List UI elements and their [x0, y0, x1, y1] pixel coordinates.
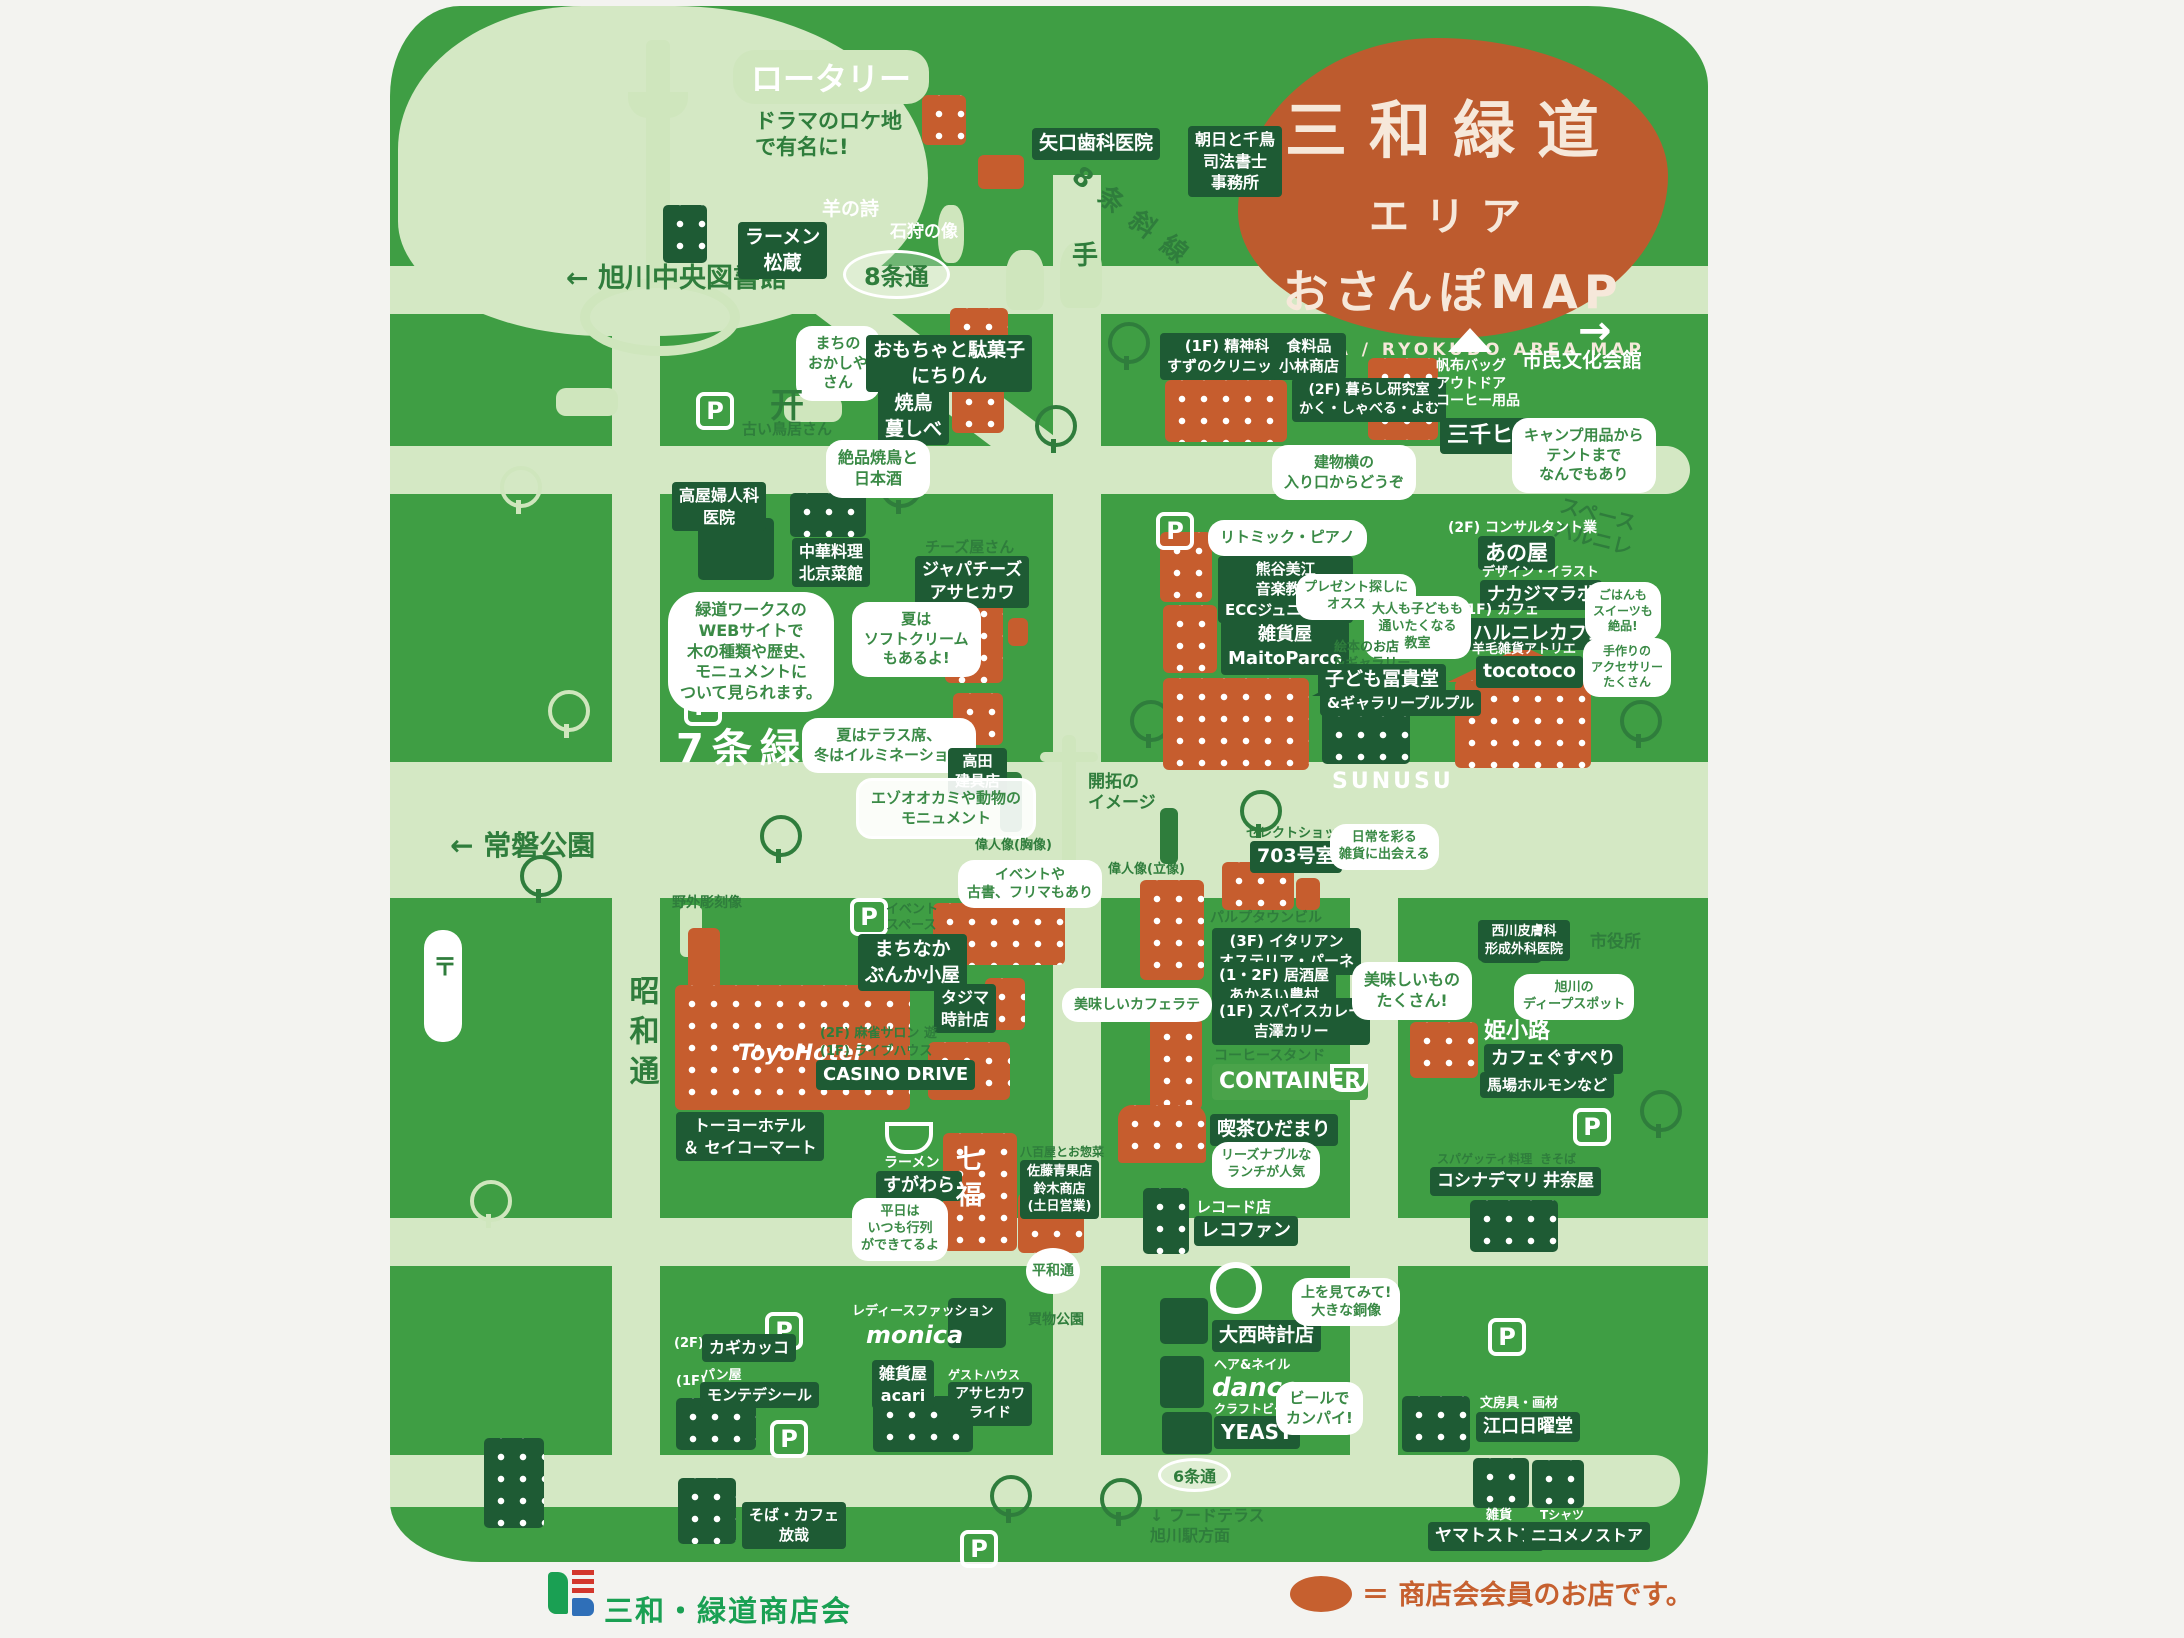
building-hosai [678, 1478, 736, 1544]
genre-cheese: チーズ屋さん [925, 538, 1014, 557]
shop-nishikawa: 西川皮膚科 形成外科医院 [1478, 920, 1570, 961]
shop-703: 703号室 [1250, 841, 1342, 873]
genre-yaoya: 八百屋とお惣菜 [1020, 1145, 1104, 1160]
road-showa-dori [612, 266, 660, 1507]
label-sheep-statue: 羊の詩 [822, 198, 879, 222]
genre-mahjong: (2F) 麻雀サロン 遊 [820, 1026, 937, 1042]
shop-yaguchi-dental: 矢口歯科医院 [1032, 128, 1160, 160]
genre-event-space: イベント スペース [886, 902, 938, 935]
shop-nikomeno-store: ニコメノストア [1524, 1522, 1650, 1550]
label-pulp-town: パルプタウンビル [1210, 910, 1322, 928]
bubble-yakitori: 絶品焼鳥と 日本酒 [826, 440, 930, 498]
parking-icon: P [1573, 1108, 1611, 1146]
shop-shichifuku: 七福 [950, 1145, 983, 1217]
parking-icon: P [1488, 1318, 1526, 1356]
genre-michihito: 帆布バッグ アウトドア コーヒー用品 [1436, 358, 1520, 411]
tower-cup-icon [628, 92, 688, 118]
genre-kosinade: スパゲッティ料理 [1437, 1152, 1532, 1167]
genre-anoya: (2F) コンサルタント業 [1448, 520, 1597, 538]
genre-casino: (1F) ライブハウス [820, 1044, 932, 1060]
building-fukido [1163, 678, 1309, 770]
figure-statue-icon [1160, 808, 1178, 864]
parking-icon: P [1156, 512, 1194, 550]
tree-icon [1108, 322, 1150, 364]
label-kaitaku: 開拓の イメージ [1088, 772, 1156, 815]
building-shiho-office [978, 155, 1024, 189]
building-maitoparco [1163, 605, 1217, 673]
shop-kagikakko: カギカッコ [702, 1334, 796, 1362]
genre-nikomeno: Tシャツ [1540, 1508, 1584, 1523]
chimney-toyo-hotel [688, 928, 720, 990]
hand-sculpture-icon [1006, 250, 1044, 310]
bubble-event: イベントや 古書、フリマもあり [958, 860, 1102, 908]
label-te-sculpture: 手 [1072, 240, 1098, 273]
bubble-accessory: 手作りの アクセサリー たくさん [1583, 638, 1671, 697]
building-pekin [790, 493, 866, 537]
label-food-terrace: ↓ フードテラス 旭川駅方面 [1150, 1506, 1265, 1546]
building-himekoji [1410, 1022, 1478, 1078]
label-8jo-dori: 8条通 [843, 250, 950, 299]
bubble-ryokudo-works: 緑道ワークスの WEBサイトで 木の種類や歴史、 モニュメントに ついて見られま… [668, 592, 834, 712]
legend-text: ＝ 商店会会員のお店です。 [1362, 1578, 1693, 1613]
pioneer-pole-arm-icon [1040, 752, 1098, 762]
building-container [1150, 1018, 1202, 1110]
building-pulp-town [1140, 880, 1204, 980]
genre-nakajima: デザイン・イラスト [1482, 565, 1599, 581]
tree-icon [1620, 700, 1662, 742]
label-heiwa-dori: 平和通 [1026, 1248, 1080, 1294]
shop-bunka-koya: まちなか ぶんか小屋 [858, 934, 967, 991]
shop-pekin: 中華料理 北京菜館 [792, 538, 870, 587]
shop-kobayashi: 食料品 小林商店 [1272, 333, 1346, 380]
shop-nichirin: おもちゃと駄菓子 にちりん [866, 335, 1032, 392]
building-nikomeno [1532, 1460, 1584, 1508]
building-matsuzo [663, 205, 707, 263]
parking-icon: P [696, 392, 734, 430]
shop-japacheese: ジャパチーズ アサヒカワ [915, 556, 1029, 608]
building-corner-shop [484, 1438, 544, 1528]
building-onishi [1160, 1298, 1208, 1344]
shop-fujinka: 高屋婦人科 医院 [672, 482, 766, 531]
shop-gusuperi: カフェぐすぺり [1484, 1044, 1623, 1074]
label-shiyakusho: 市役所 [1590, 932, 1641, 953]
bubble-camp: キャンプ用品から テントまで なんでもあり [1512, 418, 1656, 493]
label-rotary: ロータリー [733, 50, 929, 104]
label-tokiwa-park: ← 常磐公園 [450, 828, 595, 863]
building-suzuno-kobayashi [1165, 380, 1287, 442]
shop-monte-de-seal: モンテデシール [700, 1382, 819, 1408]
title-line2: エリア [1238, 184, 1668, 242]
building-703-annex [1296, 878, 1320, 910]
big-clock-icon [1210, 1262, 1262, 1314]
bubble-deep-spot: 旭川の ディープスポット [1514, 974, 1634, 1020]
logo-text: 三和・緑道商店会 [604, 1588, 852, 1630]
post-mark-icon: 〒 [433, 952, 457, 982]
genre-inaya: きそば [1540, 1152, 1576, 1167]
bubble-gyoretsu: 平日は いつも行列 ができてるよ [852, 1198, 948, 1261]
bubble-douzo: 上を見てみて! 大きな銅像 [1292, 1278, 1400, 1326]
label-sculpture: 野外彫刻像 [672, 895, 742, 913]
label-ijin-statue2: 偉人像(立像) [1108, 862, 1185, 878]
genre-sugawara: ラーメン [884, 1155, 939, 1173]
bubble-entrance: 建物横の 入り口からどうぞ [1272, 445, 1416, 500]
shop-tsurushibe: 焼鳥 蔓しべ [878, 388, 949, 445]
building-recofan [1143, 1188, 1189, 1254]
shop-sato-suzuki: 佐藤青果店 鈴木商店 (土日営業) [1020, 1160, 1099, 1219]
shop-yoshizawa-curry: (1F) スパイスカレー 吉澤カリー [1212, 998, 1370, 1045]
shop-acari: 雑貨屋 acari [872, 1360, 934, 1409]
shop-hosai: そば・カフェ 放哉 [742, 1502, 846, 1549]
shop-ramen-matsuzo: ラーメン 松蔵 [738, 222, 827, 279]
bubble-lunch: リーズナブルな ランチが人気 [1212, 1142, 1320, 1188]
tree-icon [470, 1180, 512, 1222]
ramen-bowl-icon [885, 1122, 933, 1154]
building-hidamari [1118, 1105, 1206, 1163]
note-rotary: ドラマのロケ地 で有名に! [755, 108, 902, 161]
label-himekoji: 姫小路 [1484, 1018, 1550, 1046]
label-kaimono-koen: 買物公園 [1028, 1312, 1084, 1330]
bubble-oishii: 美味しいもの たくさん! [1352, 962, 1472, 1020]
label-ishikari-statue: 石狩の像 [890, 222, 958, 243]
bubble-rhythmique: リトミック・ピアノ [1208, 520, 1367, 556]
bubble-gohan: ごはんも スイーツも 絶品! [1585, 582, 1661, 641]
shop-baba-horumon: 馬場ホルモンなど [1480, 1072, 1614, 1098]
floor-kagikakko: (2F) [674, 1336, 704, 1352]
shop-kurashi-lab: (2F) 暮らし研究室 かく・しゃべる・よむ [1292, 378, 1446, 422]
building-dance [1160, 1356, 1204, 1408]
label-culture-hall: 市民文化会館 [1522, 348, 1642, 373]
genre-recofan: レコード店 [1196, 1198, 1271, 1217]
label-ijin-statue: 偉人像(胸像) [975, 838, 1052, 854]
shop-eguchi-nichiyodo: 江口日曜堂 [1476, 1412, 1580, 1442]
shop-sunusu: SUNUSU [1332, 768, 1454, 796]
bubble-latte: 美味しいカフェラテ [1062, 988, 1212, 1022]
shop-tocotoco: tocotoco [1476, 656, 1583, 688]
shop-hidamari: 喫茶ひだまり [1210, 1114, 1338, 1146]
label-monument: エゾオオカミや動物の モニュメント [856, 778, 1036, 839]
map-page: 〒 [0, 0, 2184, 1638]
building-yamato [1473, 1458, 1529, 1508]
label-6jo-dori: 6条通 [1158, 1458, 1231, 1492]
mountain-logo-icon [1448, 328, 1492, 352]
tree-icon [548, 690, 590, 732]
tree-icon [1640, 1090, 1682, 1132]
shop-monica: monica [866, 1320, 963, 1350]
sign-japacheese [1008, 618, 1028, 646]
genre-monica: レディースファッション [852, 1304, 993, 1320]
car-icon [556, 388, 618, 416]
label-showa-dori: 昭和通 [622, 975, 660, 1095]
shop-tajima: タジマ 時計店 [934, 984, 996, 1033]
bubble-zakka: 日常を彩る 雑貨に出会える [1330, 824, 1439, 870]
tree-icon [990, 1475, 1032, 1517]
shop-recofan: レコファン [1194, 1216, 1298, 1246]
tree-icon [1100, 1478, 1142, 1520]
genre-ride: ゲストハウス [948, 1368, 1020, 1383]
building-yaguchi-dental [922, 95, 966, 145]
parking-icon: P [960, 1530, 998, 1568]
map-title: 三和緑道 エリア おさんぽMAP SANWA / RYOKUDO AREA MA… [1238, 38, 1668, 338]
building-inaya [1470, 1200, 1558, 1252]
parking-icon: P [850, 898, 888, 936]
shop-casino-drive: CASINO DRIVE [816, 1060, 975, 1090]
building-yeast [1162, 1412, 1212, 1454]
genre-eguchi: 文房具・画材 [1480, 1396, 1558, 1412]
bubble-beer: ビールで カンパイ! [1276, 1382, 1363, 1435]
logo-mark [548, 1568, 596, 1618]
tree-icon [1035, 405, 1077, 447]
note-torii: 古い鳥居さん [742, 420, 832, 439]
shop-asahikawa-ride: アサヒカワ ライド [948, 1382, 1032, 1426]
title-line1: 三和緑道 [1238, 80, 1668, 170]
legend-swatch [1290, 1576, 1352, 1612]
shop-shiho-office: 朝日と千鳥 司法書士 事務所 [1188, 126, 1282, 197]
tree-icon [500, 466, 542, 508]
tree-icon [760, 815, 802, 857]
coffee-cup-icon [1330, 1064, 1368, 1092]
parking-icon: P [770, 1420, 808, 1458]
shop-inaya: 井奈屋 [1536, 1167, 1601, 1196]
bubble-softcream: 夏は ソフトクリーム もあるよ! [852, 602, 981, 677]
building-eguchi [1402, 1396, 1470, 1452]
genre-container: コーヒースタンド [1214, 1048, 1325, 1066]
genre-harunire-cafe: (1F) カフェ [1460, 602, 1539, 620]
shop-toyo-hotel-seicomart: トーヨーホテル ＆ セイコーマート [676, 1112, 824, 1161]
shop-gallery-purupuru: &ギャラリープルプル [1320, 690, 1481, 716]
postbox-pillar-icon [424, 930, 462, 1042]
